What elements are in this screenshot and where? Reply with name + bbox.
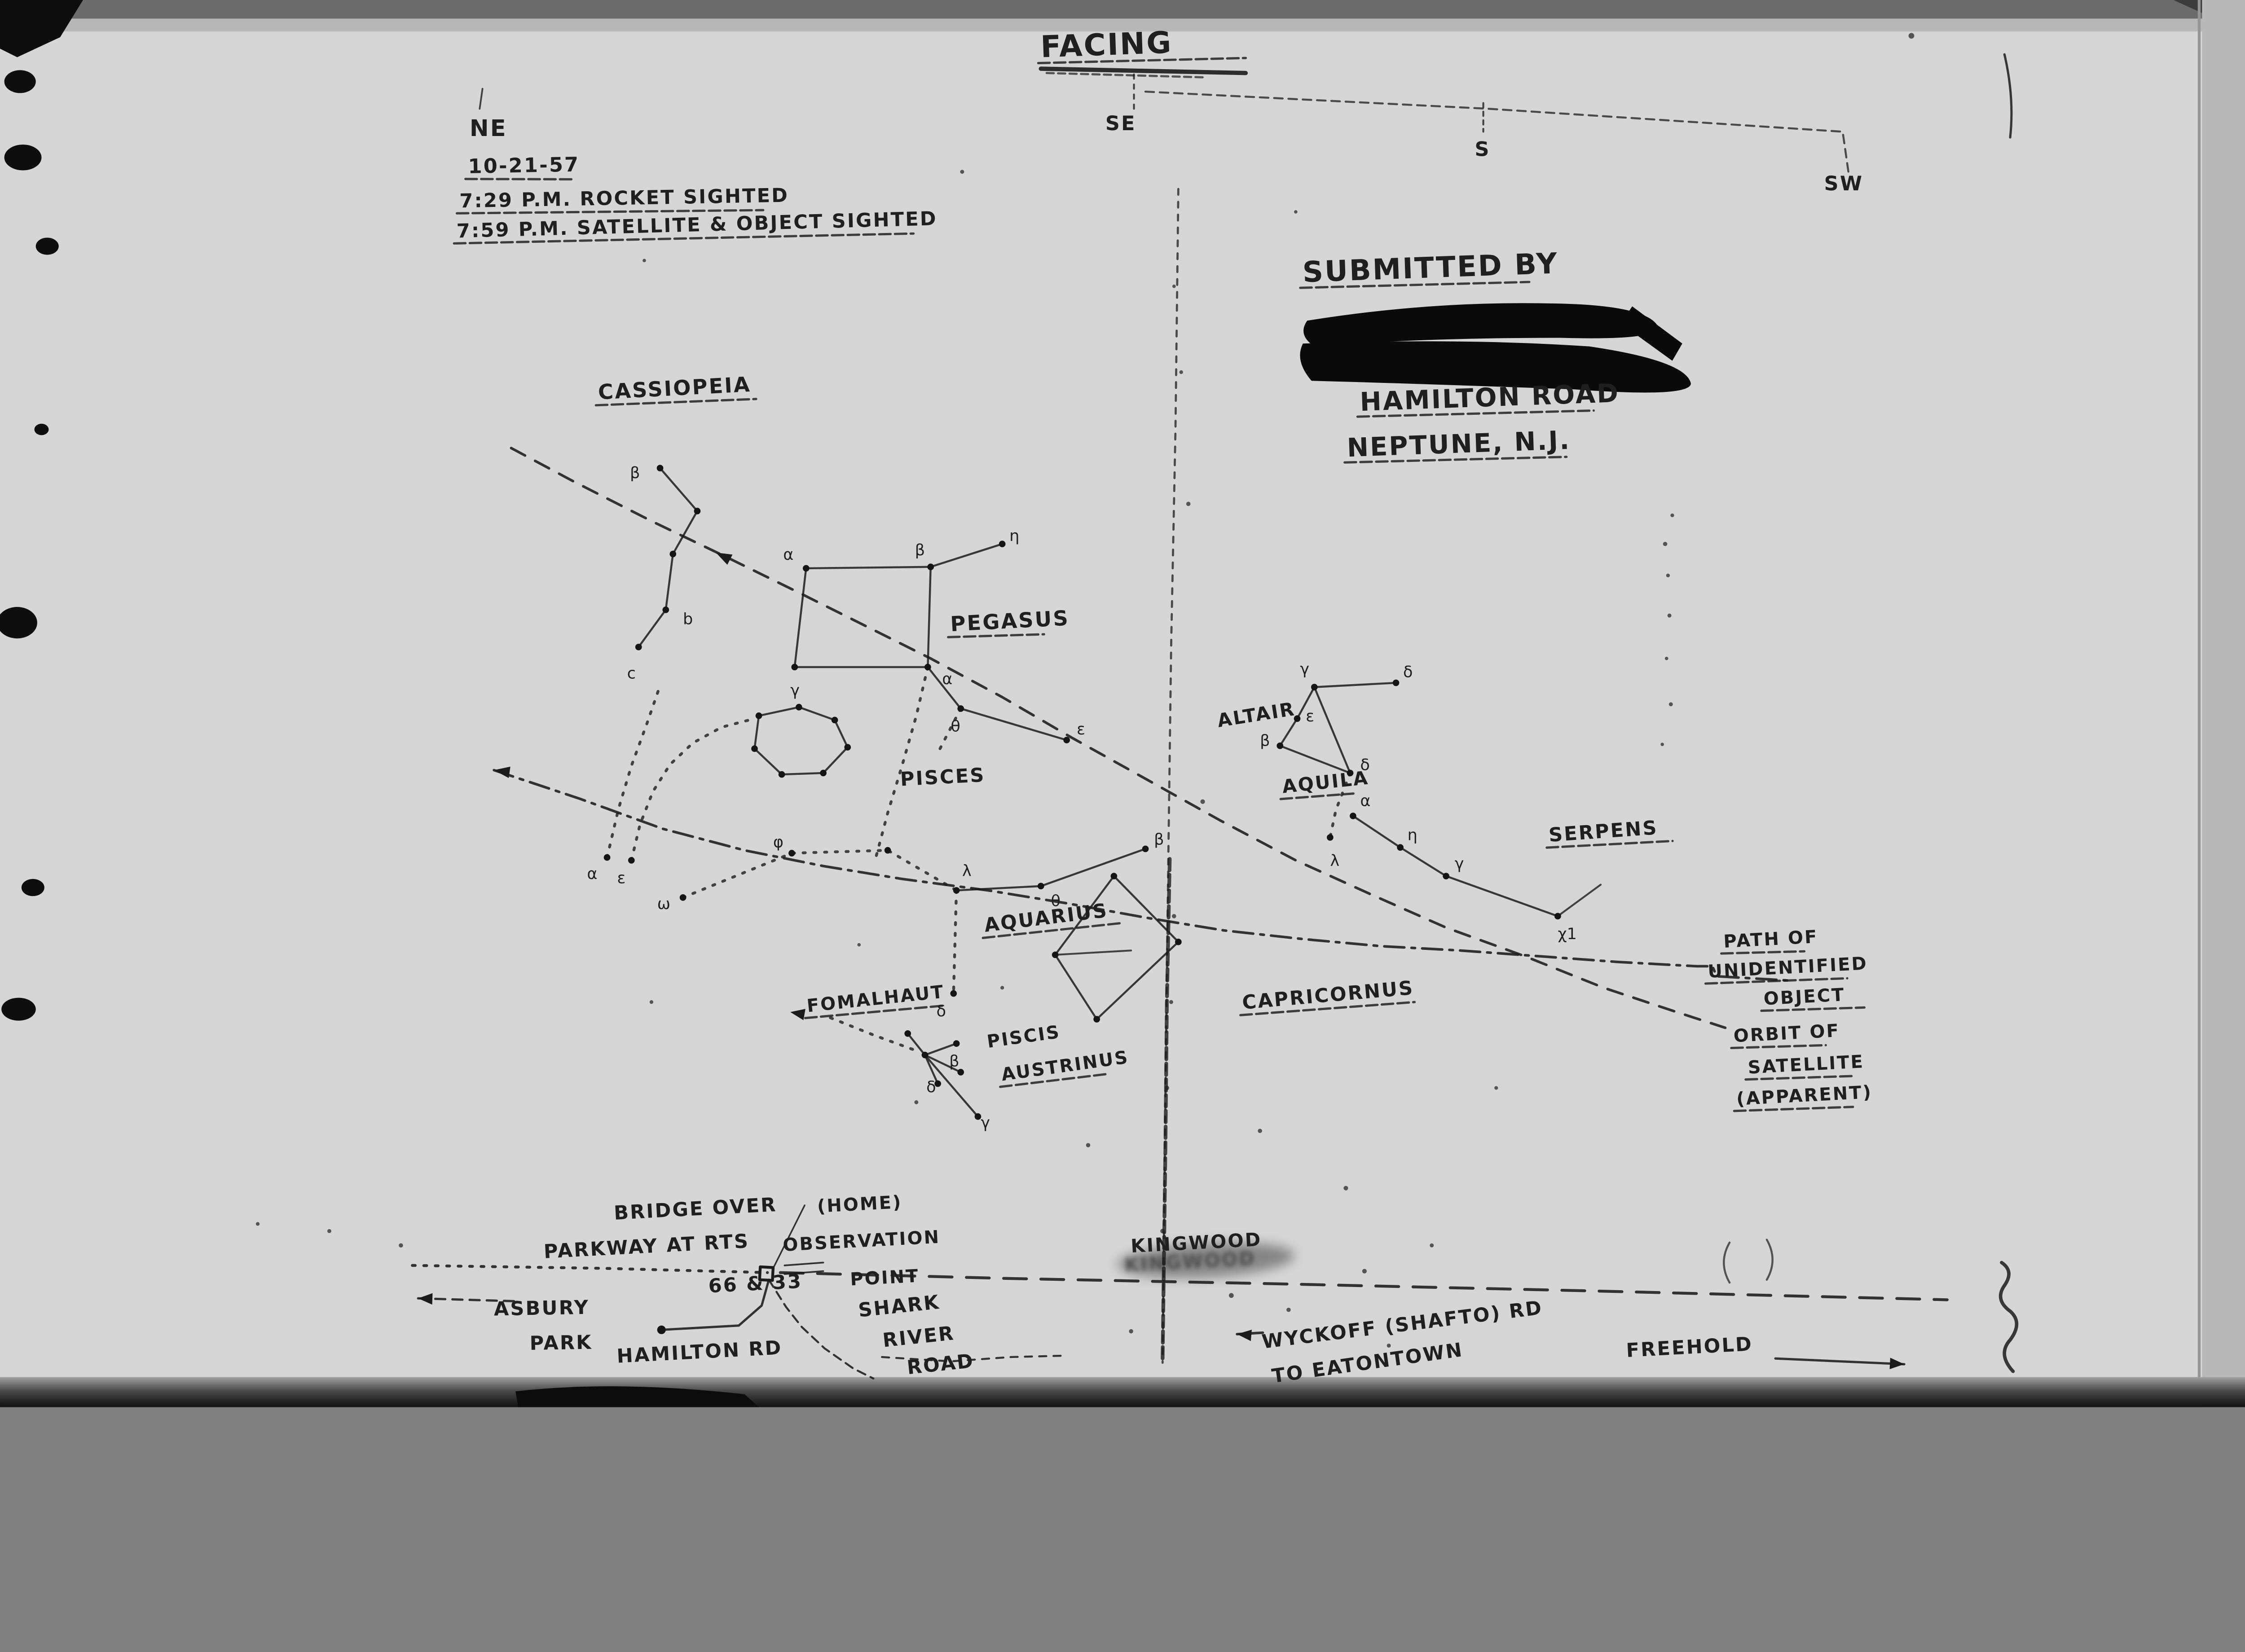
speck <box>1180 370 1183 374</box>
pegasus-star <box>957 705 964 712</box>
serpens-star <box>1397 844 1404 851</box>
pegasus-star <box>924 664 931 671</box>
aquarius-star <box>950 990 957 997</box>
aquila-greek-mark: δ <box>1403 663 1413 681</box>
speck <box>1670 514 1674 517</box>
label-ne: NE <box>470 115 507 142</box>
speck <box>643 259 646 263</box>
pegasus-greek-mark: γ <box>790 681 800 700</box>
pisces-star <box>796 704 802 711</box>
speck <box>1362 1269 1367 1274</box>
speck <box>857 943 861 947</box>
aquarius-greek-mark: φ <box>773 833 784 852</box>
label-s: S <box>1475 138 1490 161</box>
scan-bottom-band <box>0 1377 2245 1407</box>
cassiopeia-greek-mark: β <box>630 464 640 482</box>
speck <box>1229 1293 1234 1298</box>
aquila-star <box>1311 684 1318 690</box>
speck <box>1494 1086 1498 1090</box>
road-hamilton-dot <box>657 1326 666 1334</box>
label-sw: SW <box>1824 172 1863 195</box>
speck <box>650 1000 653 1004</box>
pisces-line <box>782 773 823 774</box>
serpens-greek-mark: γ <box>1455 855 1464 873</box>
cassiopeia-star <box>694 508 701 514</box>
pegasus-greek-mark: η <box>1009 527 1019 545</box>
pisces-star <box>832 717 838 724</box>
speck <box>1172 285 1176 288</box>
serpens-star <box>1443 873 1449 879</box>
pisces-star <box>756 712 762 719</box>
piscis-austrinus-star <box>953 1040 960 1047</box>
speck <box>1000 986 1004 989</box>
speck <box>914 1100 918 1104</box>
label-text-se: SE <box>1105 112 1136 135</box>
speck <box>1086 1143 1091 1147</box>
pegasus-greek-mark: α <box>942 670 952 688</box>
cassiopeia-star <box>662 606 669 613</box>
speck <box>256 1222 260 1226</box>
scanned-document: βbcαβηγαθεαεφωλθβδγδεβδλαηγχ1βδγ FACINGN… <box>0 0 2245 1407</box>
speck <box>960 170 964 174</box>
pegasus-star <box>927 563 934 570</box>
speck <box>1660 743 1664 746</box>
pisces-greek-mark: α <box>587 865 597 883</box>
label-point: POINT <box>850 1265 920 1290</box>
cassiopeia-greek-b: b <box>683 610 693 628</box>
speck <box>1172 914 1176 918</box>
label-7-29-p-m-rocket-sighted: 7:29 P.M. ROCKET SIGHTED <box>457 185 789 215</box>
pegasus-line <box>806 567 930 568</box>
aquarius-star <box>885 847 891 854</box>
piscis-austrinus-greek-mark: γ <box>981 1114 990 1132</box>
aquarius-greek-mark: ω <box>657 895 670 913</box>
pegasus-star <box>999 540 1006 547</box>
cassiopeia-greek-c: c <box>627 664 636 682</box>
label-text-facing: FACING <box>1040 25 1173 64</box>
speck <box>1160 1229 1165 1233</box>
pisces-star <box>628 857 635 864</box>
pegasus-greek-mark: θ <box>951 717 960 735</box>
aquila-star <box>1393 680 1400 686</box>
pegasus-greek-mark: ε <box>1077 720 1085 738</box>
speck <box>1169 1000 1173 1004</box>
piscis-austrinus-star <box>922 1052 929 1059</box>
serpens-greek-mark: η <box>1408 826 1417 844</box>
speck <box>1286 1308 1291 1312</box>
speck <box>1200 800 1205 804</box>
label-asbury: ASBURY <box>493 1296 590 1321</box>
aquarius-star <box>1038 883 1044 890</box>
label-text-object: OBJECT <box>1763 984 1846 1009</box>
pegasus-star <box>791 664 798 671</box>
cassiopeia-star <box>635 644 642 650</box>
piscis-austrinus-star <box>904 1030 911 1037</box>
capricornus-star <box>1052 952 1059 958</box>
capricornus-star <box>1175 939 1182 945</box>
paper-background <box>0 0 2245 1407</box>
serpens-star <box>1350 813 1356 819</box>
aquila-greek-mark: β <box>1260 731 1270 750</box>
label-text-park: PARK <box>529 1331 593 1355</box>
speck <box>1186 502 1191 506</box>
label-pisces: PISCES <box>900 764 986 791</box>
capricornus-star <box>1093 1016 1100 1023</box>
aquarius-greek-mark: δ <box>936 1002 946 1020</box>
pisces-star <box>751 745 758 752</box>
speck <box>399 1243 403 1248</box>
pisces-star <box>779 771 785 778</box>
speck <box>1663 542 1668 546</box>
label-text-s: S <box>1475 138 1490 161</box>
aquarius-star <box>1142 846 1149 852</box>
label-text-10-21-57: 10-21-57 <box>468 153 580 178</box>
speck <box>1665 657 1668 660</box>
speck <box>1909 33 1915 39</box>
scan-top-band <box>0 0 2245 18</box>
aquarius-greek-mark: λ <box>962 862 972 880</box>
label-park: PARK <box>529 1331 593 1355</box>
label-path-of: PATH OF <box>1720 927 1819 956</box>
label-text-asbury: ASBURY <box>493 1296 590 1321</box>
sky-chart-scan: βbcαβηγαθεαεφωλθβδγδεβδλαηγχ1βδγ FACINGN… <box>0 0 2245 1407</box>
serpens-star <box>1554 913 1561 919</box>
speck <box>1343 1186 1348 1191</box>
aquila-star <box>1327 834 1334 841</box>
serpens-greek-1: χ1 <box>1558 925 1577 943</box>
aquarius-greek-mark: β <box>1154 830 1164 848</box>
pegasus-star <box>1063 737 1070 743</box>
aquarius-star <box>788 850 795 857</box>
speck <box>1387 1344 1391 1348</box>
paper-right-edge <box>2202 0 2245 1407</box>
speck <box>1165 1085 1169 1090</box>
aquila-star <box>1277 743 1283 749</box>
pegasus-star <box>803 565 810 572</box>
cassiopeia-star <box>669 551 676 558</box>
pegasus-greek-mark: β <box>915 541 925 559</box>
pegasus-greek-mark: α <box>783 545 793 564</box>
cassiopeia-star <box>657 465 664 471</box>
speck <box>1666 574 1670 577</box>
serpens-greek-mark: α <box>1360 791 1370 810</box>
aquila-greek-mark: λ <box>1330 852 1339 870</box>
speck <box>1668 614 1672 618</box>
speck <box>1669 702 1673 706</box>
label-se: SE <box>1105 112 1136 135</box>
pisces-star <box>604 854 611 861</box>
aquila-greek-mark: ε <box>1306 707 1314 725</box>
label-text-pisces: PISCES <box>900 764 986 791</box>
aquarius-star <box>680 894 687 901</box>
label-text-ne: NE <box>470 115 507 142</box>
speck <box>1258 1129 1262 1133</box>
aquarius-star <box>953 887 960 894</box>
capricornus-star <box>1111 873 1118 879</box>
speck <box>327 1229 331 1233</box>
label-text-point: POINT <box>850 1265 920 1290</box>
piscis-austrinus-star <box>975 1113 982 1120</box>
aquila-greek-mark: γ <box>1300 660 1309 678</box>
speck <box>1294 210 1298 214</box>
pisces-star <box>820 770 827 777</box>
speck <box>1129 1329 1133 1334</box>
piscis-austrinus-greek-mark: β <box>949 1052 959 1071</box>
speck <box>1430 1243 1434 1248</box>
pisces-star <box>844 744 851 751</box>
label-text-sw: SW <box>1824 172 1863 195</box>
piscis-austrinus-greek-mark: δ <box>926 1078 936 1096</box>
pisces-greek-mark: ε <box>617 869 625 887</box>
